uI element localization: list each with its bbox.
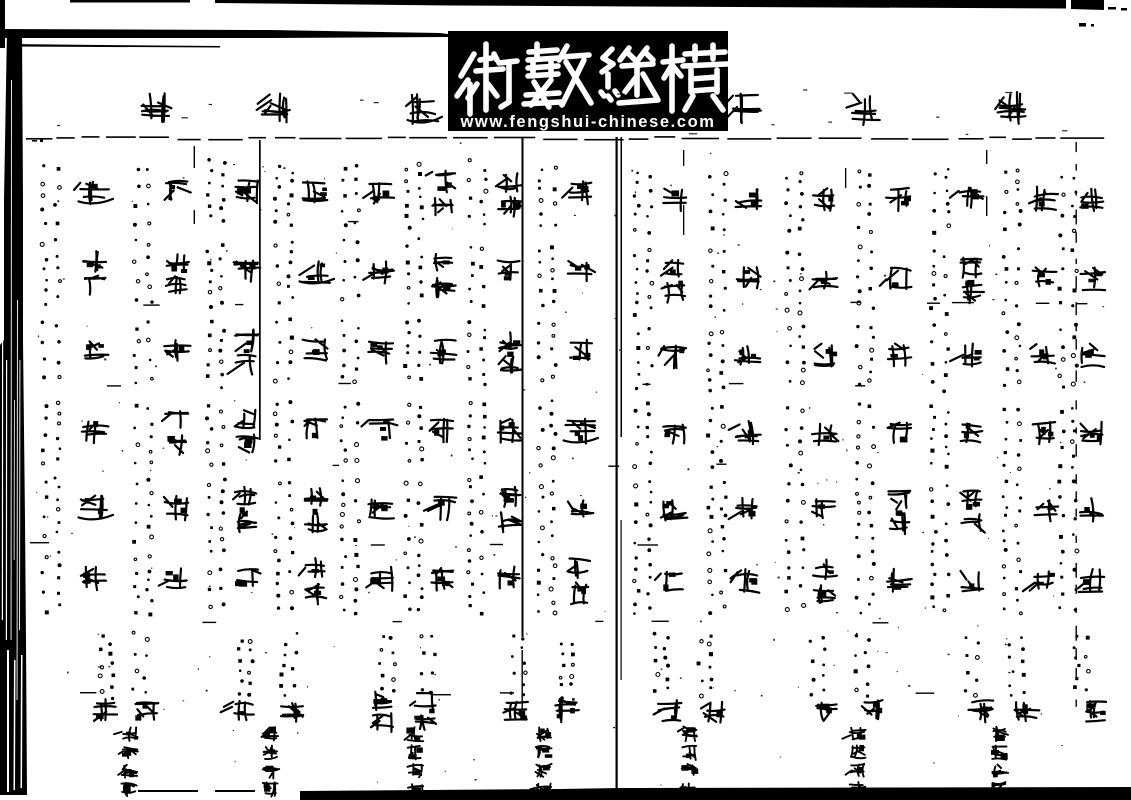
- svg-text:www.fengshui-chinese.com: www.fengshui-chinese.com: [459, 113, 715, 131]
